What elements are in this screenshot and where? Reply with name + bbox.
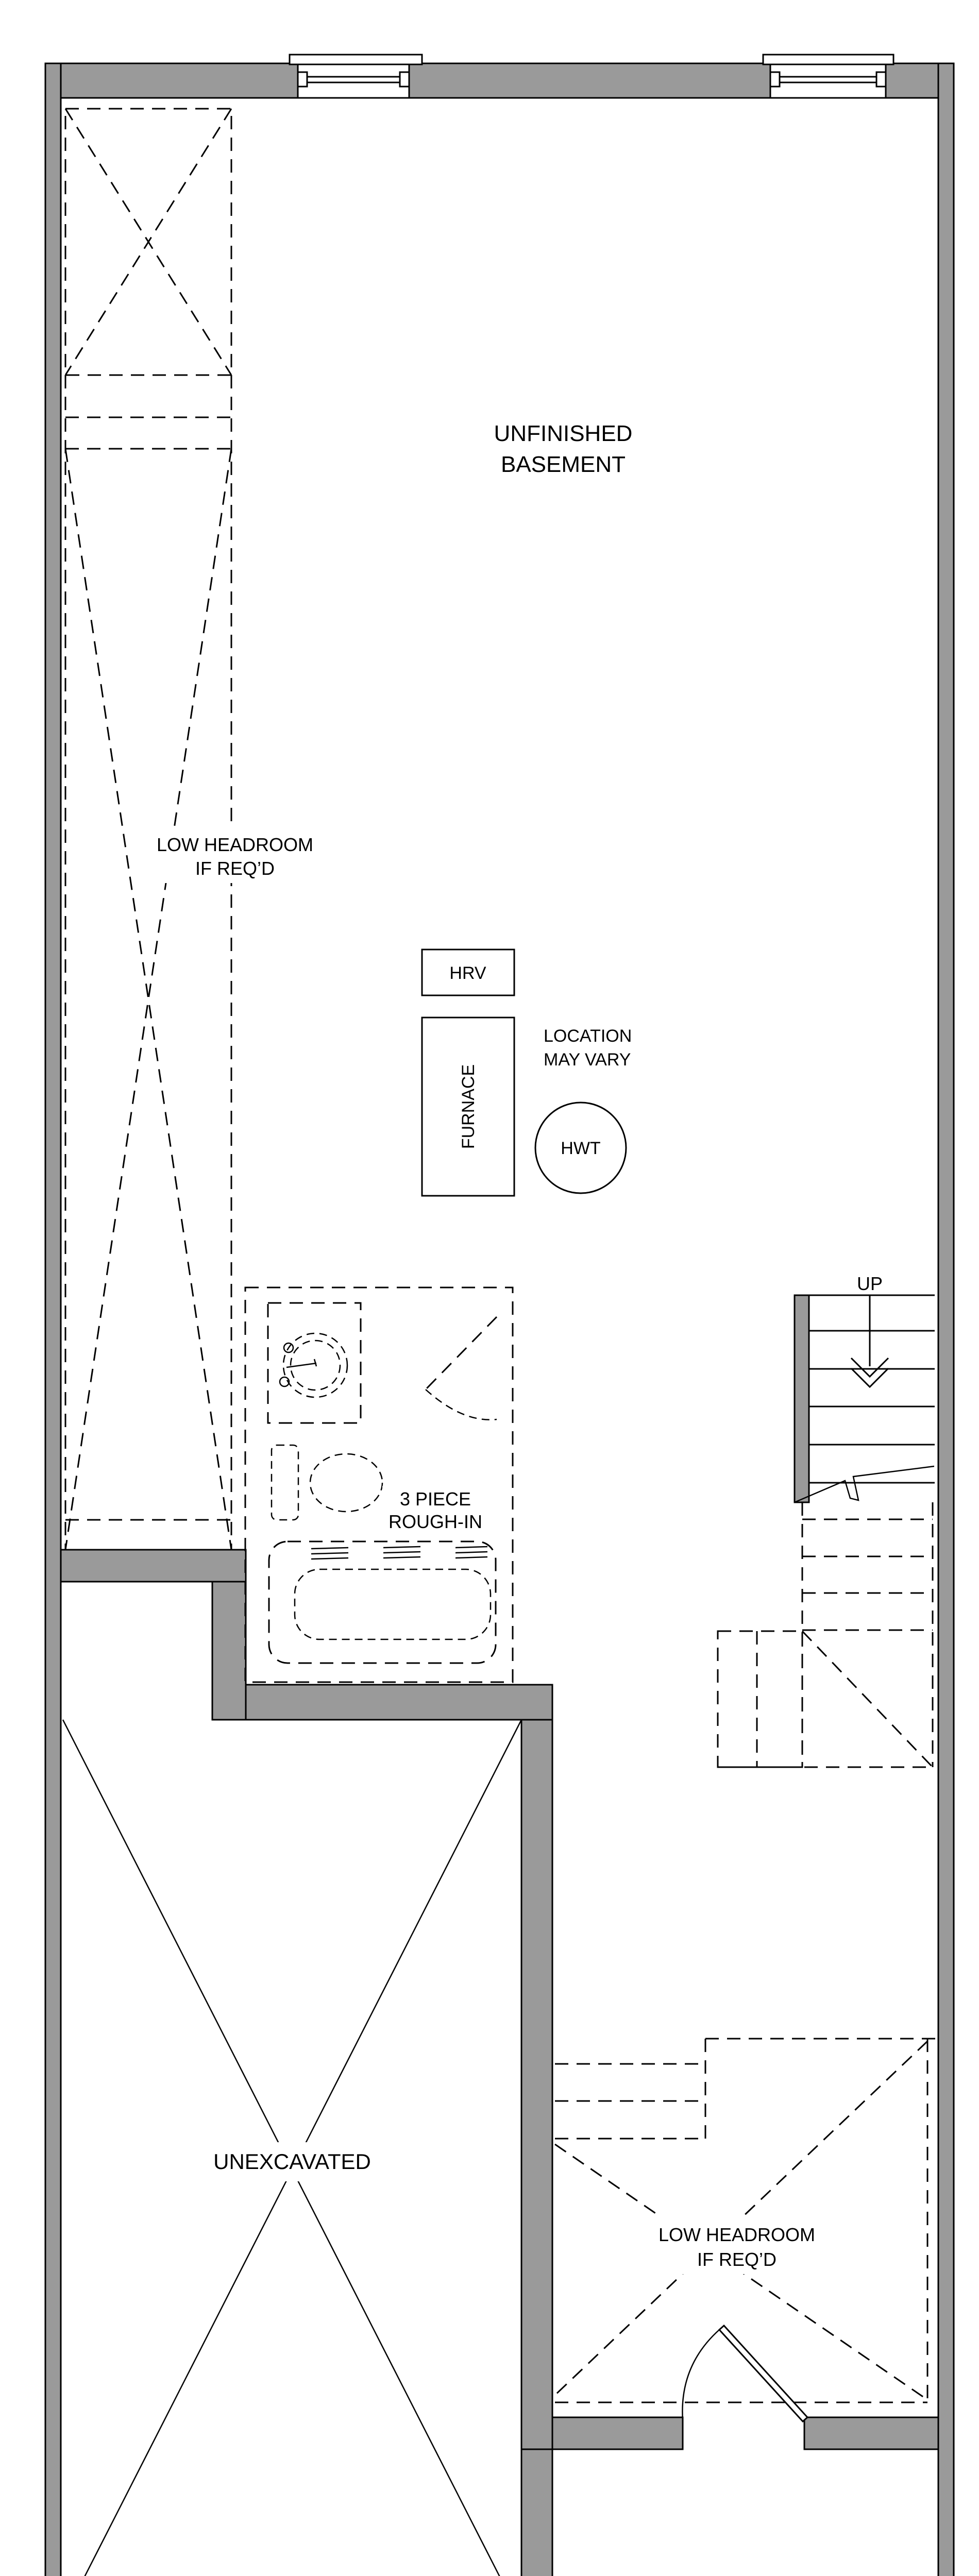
label-low-headroom-right: LOW HEADROOM IF REQ’D	[640, 2216, 836, 2274]
toilet-tank	[272, 1445, 298, 1520]
cold-cellar-north-wall-right	[804, 2417, 938, 2449]
bathroom-outline-dashed	[245, 1287, 513, 1682]
hrv-unit: HRV	[422, 950, 514, 995]
unexcavated-area: UNEXCAVATED	[63, 1720, 521, 2576]
window-top-right	[763, 55, 893, 98]
cold-cellar-door	[682, 2326, 807, 2449]
unexcavated-north-wall-left	[61, 1550, 246, 1582]
understair-closet-dashed	[718, 1631, 802, 1767]
staircase-below-dashed	[718, 1502, 933, 1767]
up-label: UP	[857, 1273, 883, 1294]
deck-mark	[383, 1557, 420, 1558]
window-jamb-right	[876, 72, 886, 87]
hrv-label: HRV	[449, 963, 486, 983]
label-low-headroom-left: LOW HEADROOM IF REQ’D	[143, 827, 327, 883]
bathtub-outer	[269, 1541, 496, 1663]
deck-mark	[311, 1548, 348, 1549]
stairs-above-dashed	[65, 375, 231, 1550]
storage-closet-dashed	[65, 109, 231, 375]
rough-in-label-line2: ROUGH-IN	[389, 1511, 482, 1532]
toilet-bowl	[310, 1454, 382, 1512]
low-headroom-label-line1: LOW HEADROOM	[659, 2224, 815, 2245]
bathroom-west-wall	[212, 1582, 246, 1720]
deck-mark	[311, 1558, 348, 1559]
bathroom-rough-in: 3 PIECE ROUGH-IN	[245, 1287, 513, 1682]
floor-plan-page: LOW HEADROOM IF REQ’D UNFINISHED BASEMEN…	[0, 0, 979, 2576]
window-sill	[763, 55, 893, 64]
low-headroom-label-line2: IF REQ’D	[697, 2249, 777, 2270]
laundry-tub-outer	[283, 1333, 347, 1397]
window-glazing	[307, 77, 400, 82]
cold-cellar-west-wall	[521, 2449, 552, 2576]
basement-floor-plan: LOW HEADROOM IF REQ’D UNFINISHED BASEMEN…	[0, 0, 979, 2576]
stair-long-x-line	[65, 449, 231, 1550]
unexcavated-east-wall	[521, 1720, 552, 2449]
deck-mark	[455, 1552, 487, 1553]
window-top-left	[290, 55, 422, 98]
door-swing-arc	[682, 2330, 719, 2420]
deck-mark	[455, 1557, 487, 1558]
unexcavated-label: UNEXCAVATED	[213, 2149, 371, 2174]
understair-diagonal	[802, 1631, 933, 1767]
low-headroom-label-line1: LOW HEADROOM	[157, 834, 313, 855]
staircase: UP	[795, 1273, 935, 1502]
cold-cellar-north-wall-left	[552, 2417, 683, 2449]
deck-mark	[311, 1553, 348, 1554]
bathroom-south-wall	[246, 1685, 552, 1720]
door-leaf-dashed	[426, 1317, 497, 1389]
window-sill	[290, 55, 422, 64]
deck-mark	[383, 1547, 420, 1548]
stair-newel-wall	[795, 1295, 809, 1502]
window-jamb-left	[770, 72, 780, 87]
deck-mark	[383, 1552, 420, 1553]
right-wall	[938, 63, 954, 2576]
interior-walls	[45, 1550, 954, 2576]
door-swing-arc	[426, 1389, 497, 1420]
furnace-label: FURNACE	[459, 1064, 478, 1149]
window-jamb-right	[400, 72, 409, 87]
hwt-label: HWT	[561, 1139, 600, 1158]
hwt-tank: HWT	[535, 1103, 626, 1193]
bathtub-deck-marks	[311, 1547, 487, 1559]
left-wall	[45, 63, 61, 2576]
bathtub-inner	[295, 1569, 491, 1639]
location-note: LOCATION MAY VARY	[544, 1026, 632, 1070]
location-note-line2: MAY VARY	[544, 1050, 631, 1070]
door-leaf	[719, 2326, 807, 2421]
stair-long-x-line	[65, 449, 231, 1550]
deck-mark	[455, 1547, 487, 1548]
unfinished-basement-line2: BASEMENT	[501, 452, 626, 477]
location-note-line1: LOCATION	[544, 1026, 632, 1046]
rough-in-label-line1: 3 PIECE	[400, 1488, 471, 1510]
low-headroom-label-line2: IF REQ’D	[195, 858, 275, 879]
furnace-unit: FURNACE	[422, 1018, 514, 1196]
window-jamb-left	[298, 72, 307, 87]
stair-break-line	[795, 1466, 934, 1502]
window-glazing	[780, 77, 876, 82]
unfinished-basement-line1: UNFINISHED	[494, 421, 633, 446]
label-unfinished-basement: UNFINISHED BASEMENT	[494, 421, 633, 477]
label-rough-in: 3 PIECE ROUGH-IN	[382, 1486, 491, 1535]
